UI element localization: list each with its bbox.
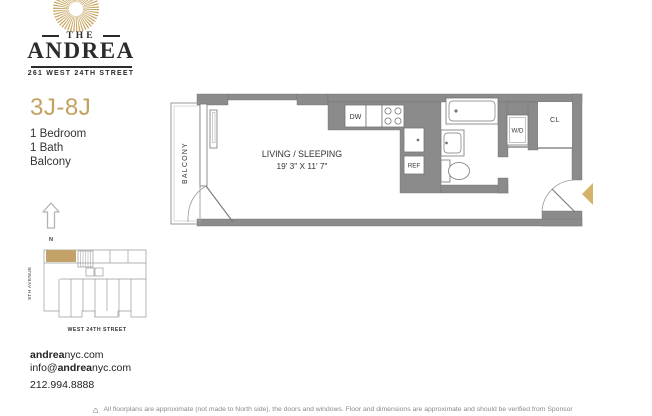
brand-divider — [31, 66, 132, 68]
feature-bath: 1 Bath — [30, 141, 86, 155]
unit-id: 3J-8J — [30, 94, 91, 122]
room-label: LIVING / SLEEPING — [262, 149, 342, 159]
brand-address: 261 WEST 24TH STREET — [0, 70, 162, 77]
floor-plan: LIVING / SLEEPING 19' 3" X 11' 7" BALCON… — [165, 80, 595, 232]
email: info@andreanyc.com — [30, 362, 131, 375]
phone: 212.994.8888 — [30, 379, 131, 392]
kitchen-sink — [404, 128, 424, 152]
right-dash-ornament — [103, 35, 120, 37]
entry-marker-icon — [582, 183, 593, 205]
feature-bedroom: 1 Bedroom — [30, 127, 86, 141]
avenue-label: 8TH AVENUE — [27, 266, 32, 299]
washer-dryer-label: W/D — [511, 128, 524, 135]
faucet-dot — [417, 139, 419, 141]
highlighted-unit — [46, 250, 76, 262]
balcony-door — [188, 186, 233, 222]
burner-icon — [395, 118, 401, 124]
footer-disclaimer: All floorplans are approximate (not made… — [103, 406, 573, 413]
site-map: N 8TH AVENUE WEST 24TH STREET — [24, 200, 154, 335]
balcony-label: BALCONY — [182, 142, 189, 184]
drain-dot — [455, 110, 457, 112]
dishwasher-label: DW — [350, 114, 362, 121]
street-label: WEST 24TH STREET — [67, 327, 126, 333]
stove-box — [382, 105, 404, 127]
closet-label: CL — [550, 117, 560, 124]
faucet-dot — [446, 142, 448, 144]
toilet-bowl — [449, 163, 470, 180]
brand-name: ANDREA — [0, 38, 162, 64]
burner-icon — [385, 108, 391, 114]
equal-housing-icon: ⌂ — [93, 406, 98, 415]
unit-features: 1 Bedroom 1 Bath Balcony — [30, 127, 86, 169]
website: andreanyc.com — [30, 349, 131, 362]
burner-icon — [395, 108, 401, 114]
refrigerator-label: REF — [408, 163, 421, 170]
burner-icon — [385, 118, 391, 124]
left-dash-ornament — [42, 35, 59, 37]
footer-disclaimer-row: ⌂ All floorplans are approximate (not ma… — [93, 406, 593, 415]
brand-logo-block: THE ANDREA 261 WEST 24TH STREET — [0, 0, 162, 90]
north-arrow-icon — [43, 203, 59, 228]
counter-box — [366, 105, 382, 127]
feature-balcony: Balcony — [30, 155, 86, 169]
closet-box — [538, 102, 572, 148]
entry-door — [542, 180, 575, 213]
balcony-structure — [171, 103, 217, 224]
north-label: N — [49, 237, 53, 243]
contact-block: andreanyc.com info@andreanyc.com 212.994… — [30, 349, 131, 392]
glass-wall — [200, 104, 207, 186]
room-dimensions: 19' 3" X 11' 7" — [277, 161, 328, 171]
bathtub — [446, 98, 498, 124]
bathroom — [441, 98, 498, 182]
